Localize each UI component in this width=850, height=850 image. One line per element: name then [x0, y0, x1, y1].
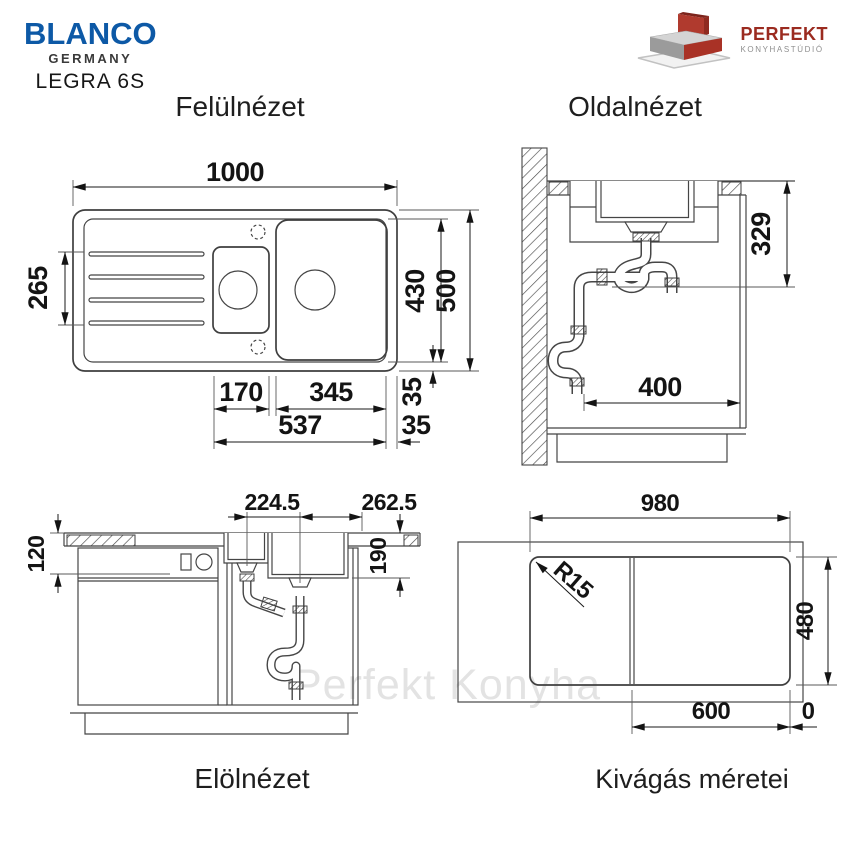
dishwasher-knob-icon [196, 554, 212, 570]
dim-400: 400 [584, 372, 740, 411]
front-view-title: Elölnézet [194, 763, 309, 794]
cutout-view-title: Kivágás méretei [595, 764, 789, 794]
top-view-sink [73, 210, 397, 371]
dim-262-5: 262.5 [344, 489, 417, 531]
top-view: Felülnézet [23, 91, 479, 449]
cutout-view: Kivágás méretei R15 980 480 [458, 490, 837, 794]
side-view-plumbing [553, 233, 679, 394]
main-bowl-drain [295, 270, 335, 310]
side-view: Oldalnézet [522, 91, 795, 465]
main-bowl [276, 220, 387, 360]
drainboard-grooves [89, 252, 204, 325]
dim-label-front-clearance: 400 [638, 372, 682, 402]
dim-label-small-bowl-width: 170 [219, 377, 263, 407]
dim-170: 170 [214, 377, 269, 409]
dim-label-front-height: 120 [23, 536, 49, 573]
side-view-title: Oldalnézet [568, 91, 702, 122]
drain-flange [625, 222, 667, 232]
drain-connector-band [633, 233, 659, 241]
front-view-plumbing [237, 563, 311, 700]
dim-label-rim-bottom: 35 [401, 410, 431, 440]
dim-label-install-depth: 329 [746, 212, 776, 256]
dim-label-corner-radius: R15 [548, 556, 598, 604]
tap-hole-top [251, 225, 265, 239]
dim-label-cutout-depth: 480 [792, 602, 819, 641]
dim-label-right-section: 600 [692, 698, 731, 725]
small-bowl [213, 247, 269, 333]
dim-190: 190 [352, 514, 410, 597]
dim-label-main-bowl-width: 345 [309, 377, 353, 407]
bowl-section-outer [596, 181, 694, 222]
sink-outer-edge [73, 210, 397, 371]
dim-35-bottom: 35 [398, 410, 431, 442]
dim-label-bowl-zone-depth: 430 [400, 269, 430, 313]
dim-r15: R15 [536, 556, 598, 607]
dim-480: 480 [792, 557, 837, 685]
technical-drawing: Perfekt Konyha Felülnézet [0, 0, 850, 850]
dim-label-bowls-span: 537 [278, 410, 322, 440]
dim-600: 600 [632, 690, 790, 734]
dim-537: 537 [214, 410, 386, 442]
dim-35-right: 35 [397, 345, 433, 407]
dim-label-edge-offset: 0 [802, 698, 815, 725]
tap-hole-bottom [251, 340, 265, 354]
dim-label-bowl-depth: 190 [365, 538, 391, 575]
top-view-title: Felülnézet [175, 91, 304, 122]
dim-265: 265 [23, 252, 84, 325]
dim-label-cutout-width: 980 [641, 490, 680, 517]
dim-label-drainer-depth: 265 [23, 266, 53, 310]
small-bowl-drain [219, 271, 257, 309]
dim-345: 345 [276, 377, 386, 409]
main-bowl-section [268, 533, 348, 578]
dim-980: 980 [530, 490, 790, 552]
dim-label-main-drain-offset: 262.5 [361, 489, 417, 515]
dim-label-small-drain-offset: 224.5 [244, 489, 300, 515]
plinth [557, 434, 727, 462]
dim-label-overall-depth: 500 [431, 269, 461, 313]
dim-label-rim-right: 35 [397, 377, 427, 407]
front-view: Elölnézet [23, 489, 420, 794]
dishwasher-display-icon [181, 554, 191, 570]
dim-1000: 1000 [73, 157, 397, 206]
small-bowl-section [224, 533, 268, 563]
dim-label-overall-width: 1000 [206, 157, 264, 187]
wall-section [522, 148, 547, 465]
sink-inner-edge [84, 219, 386, 362]
dishwasher-cabinet [78, 548, 218, 705]
plinth [85, 713, 348, 734]
spec-sheet: BLANCO GERMANY LEGRA 6S PERFEKT KONYHAST… [0, 0, 850, 850]
